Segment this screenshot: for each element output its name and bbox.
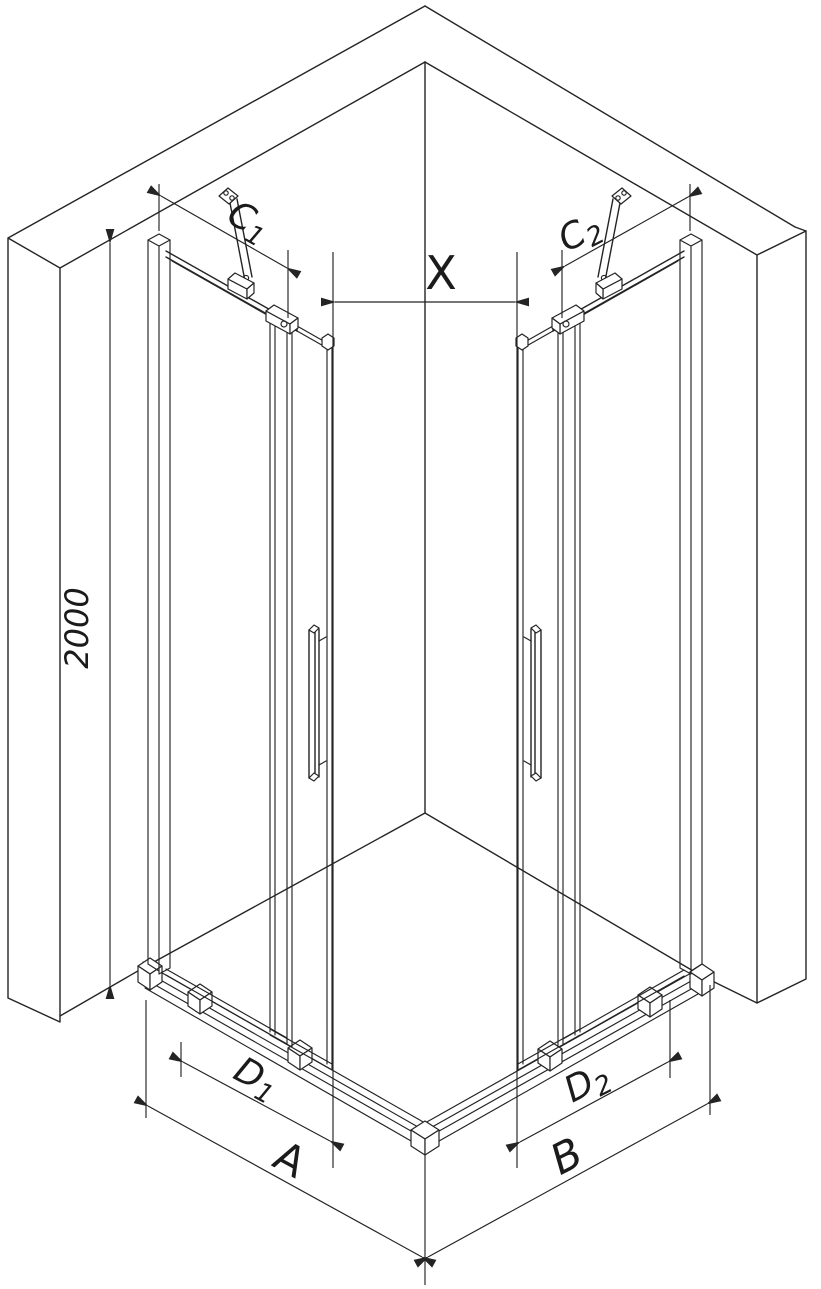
right-wall bbox=[425, 6, 806, 1003]
right-door-top-cap bbox=[516, 334, 528, 350]
dimension-a: A bbox=[148, 1106, 422, 1257]
left-roller-bracket bbox=[266, 305, 298, 334]
right-door-handle bbox=[524, 625, 541, 781]
floor-edges bbox=[60, 813, 757, 1016]
left-door-handle bbox=[309, 625, 326, 781]
right-roller-bracket bbox=[552, 305, 584, 334]
left-wall bbox=[8, 6, 425, 1022]
b-label: B bbox=[542, 1128, 590, 1185]
left-fixed-panel bbox=[166, 261, 292, 1047]
shower-tray bbox=[138, 958, 714, 1155]
height-label: 2000 bbox=[58, 587, 96, 668]
shower-enclosure-technical-drawing: 2000 X C1 C2 D1 D2 A B bbox=[0, 0, 821, 1289]
tray-corner-cap-left bbox=[138, 958, 162, 990]
right-wall-profile bbox=[680, 234, 702, 974]
left-wall-profile bbox=[148, 234, 170, 974]
right-sliding-door bbox=[516, 312, 580, 1070]
dimension-height-2000: 2000 bbox=[58, 243, 110, 985]
left-sliding-door bbox=[270, 312, 334, 1070]
c2-label: C2 bbox=[552, 205, 610, 265]
dimension-b: B bbox=[428, 1104, 707, 1257]
extension-lines bbox=[146, 184, 710, 1285]
d1-label: D1 bbox=[225, 1049, 286, 1111]
dimension-c1: C1 bbox=[161, 193, 287, 268]
left-door-top-cap bbox=[322, 334, 334, 350]
a-label: A bbox=[266, 1131, 315, 1188]
dimension-d2: D2 bbox=[520, 1054, 668, 1142]
isometric-drawing: 2000 X C1 C2 D1 D2 A B bbox=[0, 0, 821, 1289]
dimension-x: X bbox=[335, 246, 515, 302]
dimension-c2: C2 bbox=[552, 197, 688, 266]
x-label: X bbox=[425, 246, 457, 300]
d2-label: D2 bbox=[558, 1054, 618, 1115]
